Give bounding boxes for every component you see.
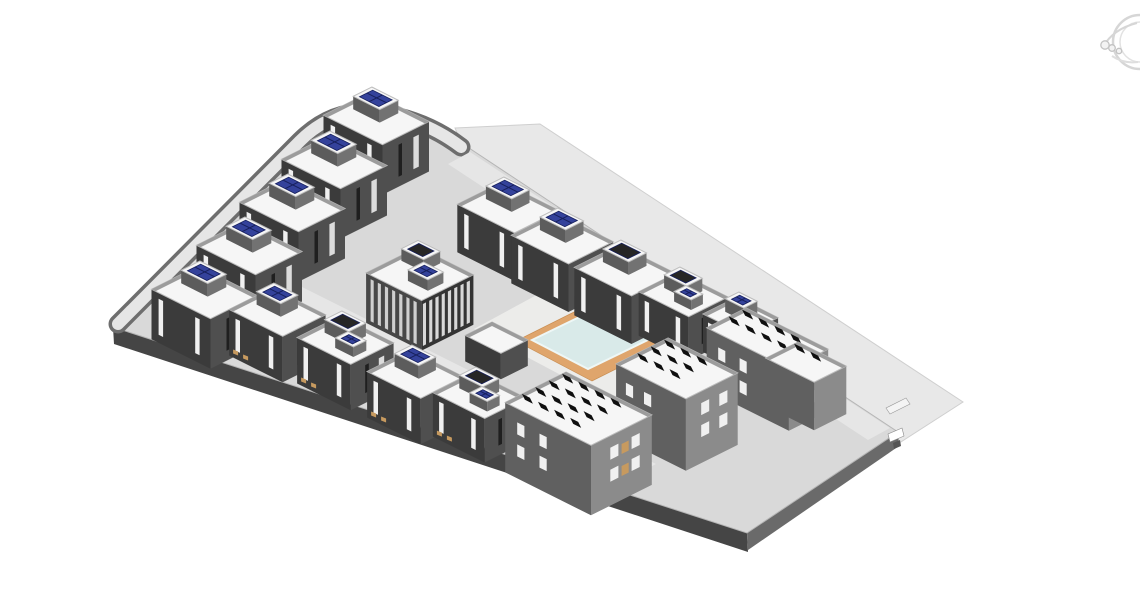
cad-viewport-page [0,0,1140,596]
navigation-wheel-icon[interactable] [1101,15,1140,69]
model-3d-viewport[interactable] [0,0,1140,596]
